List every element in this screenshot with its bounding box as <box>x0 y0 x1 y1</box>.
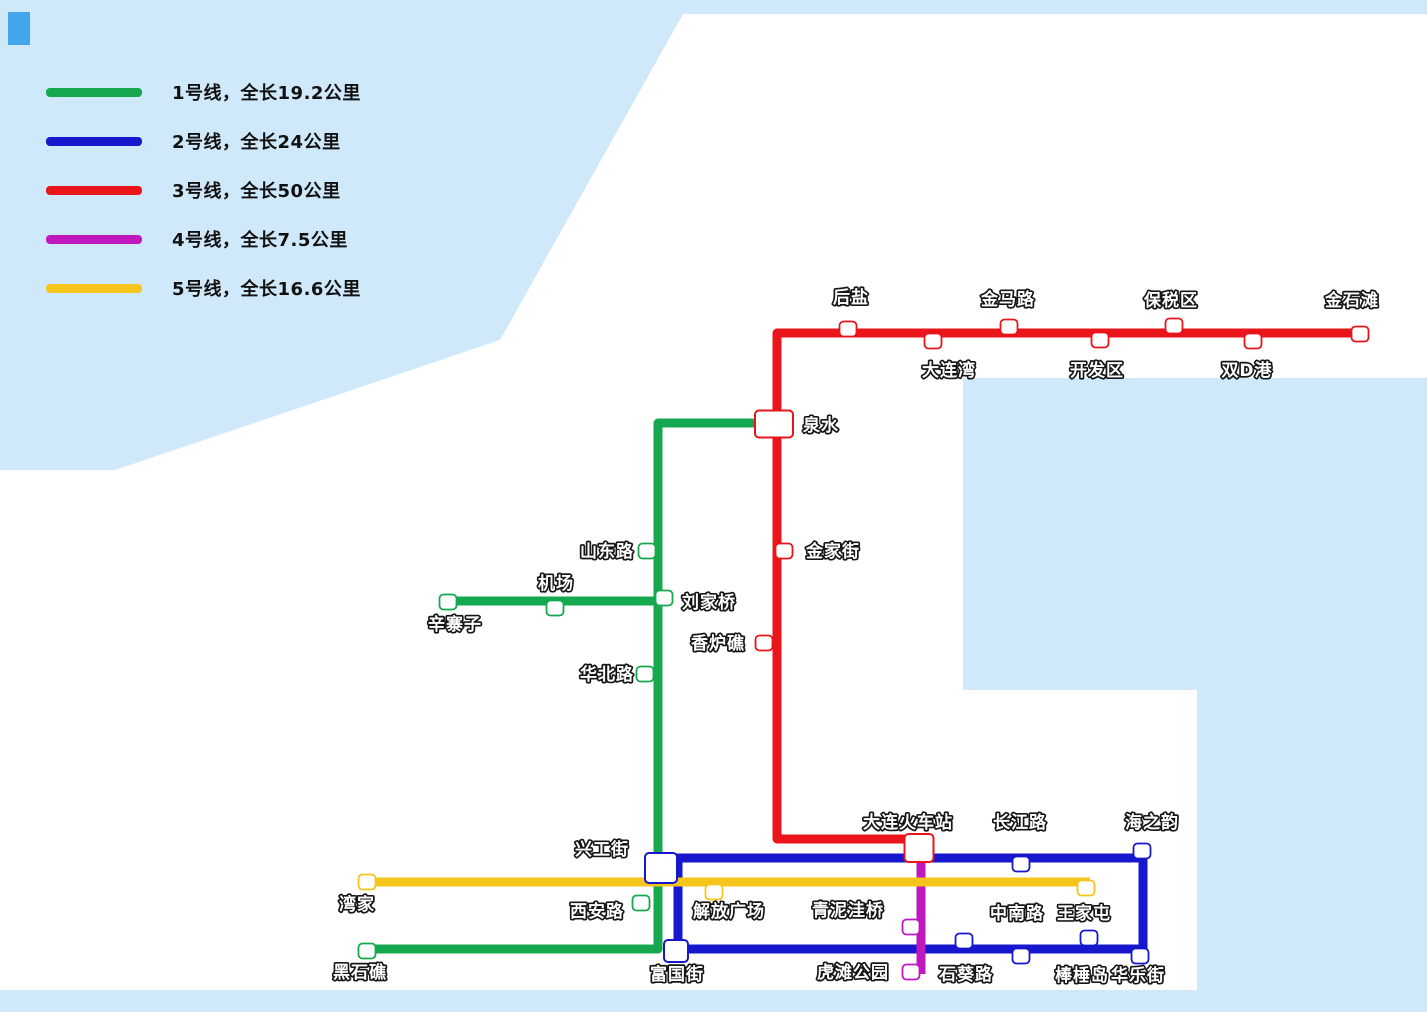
station-jichang <box>547 601 564 616</box>
station-hutangongyuan <box>903 965 920 980</box>
legend-label-line-1: 1号线，全长19.2公里 <box>172 79 361 105</box>
station-liujiaqiao <box>656 591 673 606</box>
station-shandonglu <box>639 544 656 559</box>
station-label-dalian-railway: 大连火车站 <box>863 812 953 833</box>
legend-item-line-2: 2号线，全长24公里 <box>46 127 361 155</box>
station-fuguojie <box>664 940 688 962</box>
station-label-wangjiatun: 王家屯 <box>1057 903 1111 924</box>
station-jinshitan <box>1352 327 1369 342</box>
station-shuang-d-gang <box>1245 334 1262 349</box>
station-label-baoshuiqu: 保税区 <box>1143 290 1198 311</box>
dalian-metro-map-page: 后盐大连湾金马路开发区保税区双D港金石滩金家街香炉礁泉水山东路刘家桥机场辛寨子华… <box>0 0 1427 1012</box>
station-label-wanjia: 湾家 <box>339 894 375 915</box>
station-zhongnanlu <box>1013 949 1030 964</box>
station-xinggongjie <box>645 853 677 883</box>
station-hualejie <box>1132 949 1149 964</box>
station-wanjia <box>359 875 376 890</box>
station-label-hualejie: 华乐街 <box>1111 965 1165 986</box>
legend-swatch-line-3 <box>46 186 142 195</box>
station-heishijiao <box>359 944 376 959</box>
legend-swatch-line-2 <box>46 137 142 146</box>
station-houyan <box>840 322 857 337</box>
station-label-jinshitan: 金石滩 <box>1324 290 1379 311</box>
legend-swatch-line-5 <box>46 284 142 293</box>
station-label-quanshui: 泉水 <box>802 415 839 436</box>
station-label-shikuilu: 石葵路 <box>938 964 993 985</box>
station-label-changjianglu: 长江路 <box>993 812 1047 833</box>
station-label-qingniwaqiao: 青泥洼桥 <box>812 900 884 921</box>
station-label-heishijiao: 黑石礁 <box>333 962 387 983</box>
station-dalianwan <box>925 334 942 349</box>
station-label-kaifaqu: 开发区 <box>1070 360 1124 381</box>
station-label-zhongnanlu: 中南路 <box>990 903 1044 924</box>
legend-item-line-4: 4号线，全长7.5公里 <box>46 225 361 253</box>
station-bangchuidao <box>1081 931 1098 946</box>
station-qingniwaqiao <box>903 920 920 935</box>
station-label-dalianwan: 大连湾 <box>922 360 976 381</box>
legend-item-line-5: 5号线，全长16.6公里 <box>46 274 361 302</box>
station-label-liujiaqiao: 刘家桥 <box>682 592 736 613</box>
station-label-bangchuidao: 棒棰岛 <box>1055 965 1109 986</box>
station-label-xianglujiao: 香炉礁 <box>691 633 745 654</box>
station-haizhiyun <box>1134 844 1151 859</box>
station-kaifaqu <box>1092 333 1109 348</box>
legend-label-line-3: 3号线，全长50公里 <box>172 177 341 203</box>
station-label-houyan: 后盐 <box>833 287 869 308</box>
legend-item-line-3: 3号线，全长50公里 <box>46 176 361 204</box>
station-baoshuiqu <box>1166 319 1183 334</box>
station-label-xinzhaizi: 辛寨子 <box>428 614 482 635</box>
legend-swatch-line-4 <box>46 235 142 244</box>
legend: 1号线，全长19.2公里2号线，全长24公里3号线，全长50公里4号线，全长7.… <box>46 78 361 323</box>
station-label-jinmalu: 金马路 <box>980 289 1035 310</box>
station-label-hutangongyuan: 虎滩公园 <box>817 962 889 983</box>
legend-label-line-5: 5号线，全长16.6公里 <box>172 275 361 301</box>
station-label-shuang-d-gang: 双D港 <box>1221 360 1272 381</box>
station-quanshui <box>755 411 793 438</box>
station-label-jichang: 机场 <box>538 573 574 594</box>
station-wangjiatun <box>1078 881 1095 896</box>
station-shikuilu <box>956 934 973 949</box>
station-label-fuguojie: 富国街 <box>650 964 704 985</box>
station-label-haizhiyun: 海之韵 <box>1125 812 1179 833</box>
station-xianglujiao <box>756 636 773 651</box>
station-jinjiajie <box>776 544 793 559</box>
station-label-shandonglu: 山东路 <box>580 541 634 562</box>
station-xinzhaizi <box>440 595 457 610</box>
station-label-huabeilu: 华北路 <box>580 664 634 685</box>
station-huabeilu <box>637 667 654 682</box>
legend-swatch-line-1 <box>46 88 142 97</box>
station-jiefangguangchang <box>706 885 723 900</box>
legend-item-line-1: 1号线，全长19.2公里 <box>46 78 361 106</box>
station-label-jiefangguangchang: 解放广场 <box>693 901 765 922</box>
top-left-blue-patch <box>8 12 30 45</box>
station-jinmalu <box>1001 320 1018 335</box>
legend-label-line-2: 2号线，全长24公里 <box>172 128 341 154</box>
station-xianlu <box>633 896 650 911</box>
station-label-jinjiajie: 金家街 <box>805 541 860 562</box>
station-label-xinggongjie: 兴工街 <box>575 839 629 860</box>
station-dalian-railway <box>905 834 934 862</box>
station-changjianglu <box>1013 857 1030 872</box>
station-label-xianlu: 西安路 <box>570 901 624 922</box>
legend-label-line-4: 4号线，全长7.5公里 <box>172 226 348 252</box>
